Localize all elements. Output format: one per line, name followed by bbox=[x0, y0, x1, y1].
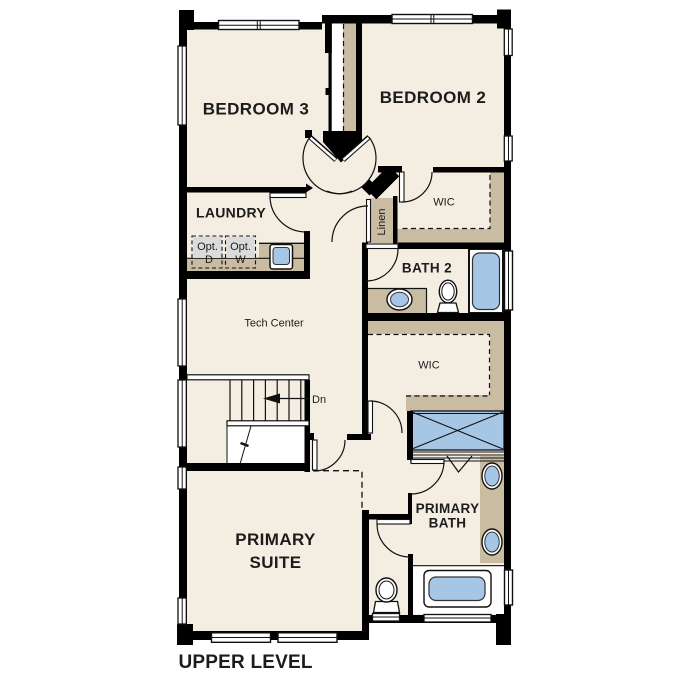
svg-text:D: D bbox=[205, 254, 213, 266]
svg-text:WIC: WIC bbox=[418, 360, 439, 372]
svg-text:Linen: Linen bbox=[376, 209, 388, 236]
svg-text:W: W bbox=[235, 254, 246, 266]
svg-text:PRIMARY: PRIMARY bbox=[235, 530, 316, 549]
svg-text:Opt.: Opt. bbox=[197, 241, 218, 253]
svg-text:PRIMARY: PRIMARY bbox=[416, 501, 480, 516]
svg-text:UPPER LEVEL: UPPER LEVEL bbox=[179, 652, 313, 673]
svg-text:BATH 2: BATH 2 bbox=[402, 261, 452, 276]
svg-text:Dn: Dn bbox=[312, 394, 326, 406]
svg-text:Tech Center: Tech Center bbox=[244, 318, 304, 330]
svg-text:Opt.: Opt. bbox=[230, 241, 251, 253]
svg-text:BEDROOM 2: BEDROOM 2 bbox=[380, 88, 487, 107]
svg-text:SUITE: SUITE bbox=[249, 553, 301, 572]
svg-text:BATH: BATH bbox=[429, 516, 467, 531]
svg-text:WIC: WIC bbox=[433, 197, 454, 209]
svg-text:LAUNDRY: LAUNDRY bbox=[196, 205, 266, 221]
svg-text:BEDROOM 3: BEDROOM 3 bbox=[203, 100, 310, 119]
